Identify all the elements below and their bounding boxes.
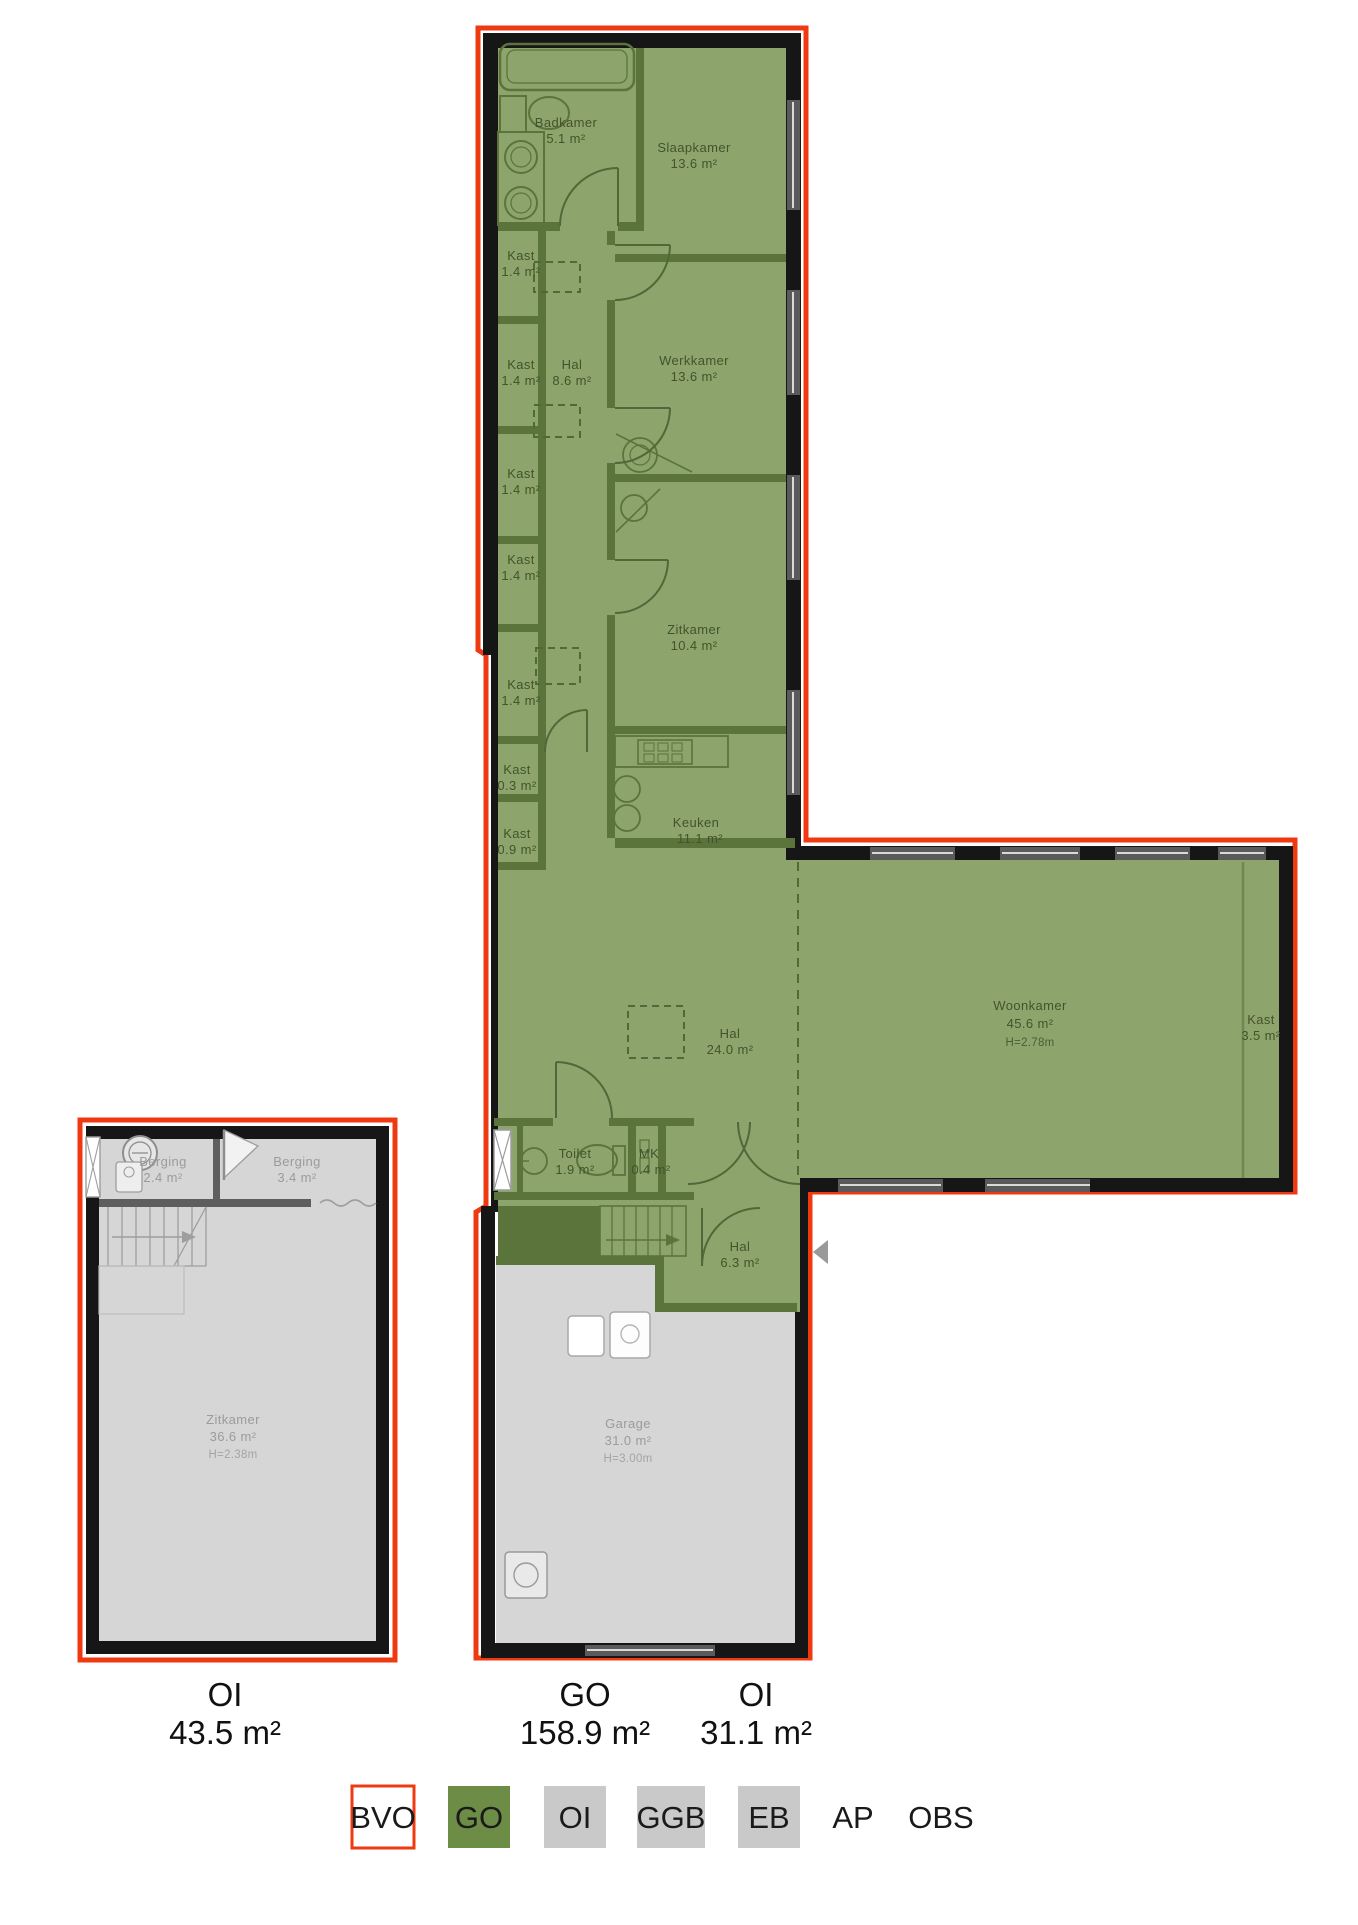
room-label-woonkamer-name: Woonkamer xyxy=(993,998,1067,1013)
room-label-mk-name: MK xyxy=(639,1146,659,1161)
legend-label-eb: EB xyxy=(748,1800,789,1835)
room-label-kast09-name: Kast xyxy=(503,826,531,841)
total-right-area: 31.1 m² xyxy=(700,1714,812,1751)
left-window xyxy=(86,1137,100,1197)
room-label-hal-entree-area: 6.3 m² xyxy=(720,1255,760,1270)
room-label-hal-entree-name: Hal xyxy=(730,1239,751,1254)
total-left-area: 43.5 m² xyxy=(169,1714,281,1751)
room-label-zitkamer10-area: 10.4 m² xyxy=(671,638,718,653)
legend-label-oi: OI xyxy=(559,1800,592,1835)
room-label-slaapkamer-name: Slaapkamer xyxy=(657,140,731,155)
total-left-code: OI xyxy=(208,1676,243,1713)
room-label-kast3-area: 1.4 m² xyxy=(501,482,541,497)
room-label-zitkamer10-name: Zitkamer xyxy=(667,622,721,637)
room-label-kast35-area: 3.5 m² xyxy=(1241,1028,1281,1043)
section-totals: OI 43.5 m² GO 158.9 m² OI 31.1 m² xyxy=(169,1676,812,1751)
legend-label-ggb: GGB xyxy=(637,1800,706,1835)
room-label-kast5-area: 1.4 m² xyxy=(501,693,541,708)
legend-label-obs: OBS xyxy=(908,1800,973,1835)
room-label-keuken-area: 11.1 m² xyxy=(677,831,723,846)
room-label-hal-midden-area: 24.0 m² xyxy=(707,1042,754,1057)
room-label-berging2-area: 3.4 m² xyxy=(277,1170,317,1185)
room-label-berging1-name: Berging xyxy=(139,1154,187,1169)
room-label-keuken-name: Keuken xyxy=(673,815,720,830)
appliance-2 xyxy=(610,1312,650,1358)
room-label-badkamer-area: 5.1 m² xyxy=(546,131,586,146)
total-right-code: OI xyxy=(739,1676,774,1713)
total-go-area: 158.9 m² xyxy=(520,1714,650,1751)
room-label-badkamer-name: Badkamer xyxy=(535,115,598,130)
room-label-berging1-area: 2.4 m² xyxy=(143,1170,183,1185)
room-label-hal-midden-name: Hal xyxy=(720,1026,741,1041)
room-label-mk-area: 0.4 m² xyxy=(631,1162,671,1177)
entrance-marker xyxy=(813,1240,828,1264)
room-label-slaapkamer-area: 13.6 m² xyxy=(671,156,718,171)
room-label-kast09-area: 0.9 m² xyxy=(497,842,537,857)
room-label-zitkamer36-area: 36.6 m² xyxy=(210,1429,257,1444)
floorplan-page: Badkamer 5.1 m² Slaapkamer 13.6 m² Kast … xyxy=(0,0,1358,1920)
room-label-woonkamer-area: 45.6 m² xyxy=(1007,1016,1054,1031)
room-label-zitkamer36-name: Zitkamer xyxy=(206,1412,260,1427)
room-label-kast4-area: 1.4 m² xyxy=(501,568,541,583)
room-label-kast03-area: 0.3 m² xyxy=(497,778,537,793)
room-label-berging2-name: Berging xyxy=(273,1154,321,1169)
room-label-hal-boven-name: Hal xyxy=(562,357,583,372)
room-label-kast2-area: 1.4 m² xyxy=(501,373,541,388)
room-label-werkkamer-area: 13.6 m² xyxy=(671,369,718,384)
room-label-kast35-name: Kast xyxy=(1247,1012,1275,1027)
room-label-garage-height: H=3.00m xyxy=(603,1453,652,1465)
room-label-kast1-area: 1.4 m² xyxy=(501,264,541,279)
legend-label-ap: AP xyxy=(832,1800,873,1835)
main-floorplan: Badkamer 5.1 m² Slaapkamer 13.6 m² Kast … xyxy=(476,28,1295,1658)
floorplan-canvas: Badkamer 5.1 m² Slaapkamer 13.6 m² Kast … xyxy=(0,0,1358,1920)
garage-unit xyxy=(505,1552,547,1598)
room-label-hal-boven-area: 8.6 m² xyxy=(552,373,592,388)
room-label-kast03-name: Kast xyxy=(503,762,531,777)
room-label-zitkamer36-height: H=2.38m xyxy=(208,1449,257,1461)
room-label-toilet-area: 1.9 m² xyxy=(555,1162,595,1177)
room-label-garage-name: Garage xyxy=(605,1416,651,1431)
room-label-kast5-name: Kast xyxy=(507,677,535,692)
legend-label-bvo: BVO xyxy=(350,1800,415,1835)
left-floorplan: Berging 2.4 m² Berging 3.4 m² Zitkamer 3… xyxy=(80,1120,395,1660)
room-label-woonkamer-height: H=2.78m xyxy=(1005,1037,1054,1049)
room-label-kast3-name: Kast xyxy=(507,466,535,481)
room-label-kast1-name: Kast xyxy=(507,248,535,263)
room-label-kast4-name: Kast xyxy=(507,552,535,567)
total-go-code: GO xyxy=(559,1676,610,1713)
room-label-garage-area: 31.0 m² xyxy=(605,1433,652,1448)
legend-label-go: GO xyxy=(455,1800,503,1835)
room-label-toilet-name: Toilet xyxy=(559,1146,592,1161)
appliance-1 xyxy=(568,1316,604,1356)
legend: BVO GO OI GGB EB AP OBS xyxy=(350,1786,973,1848)
room-label-werkkamer-name: Werkkamer xyxy=(659,353,729,368)
room-label-kast2-name: Kast xyxy=(507,357,535,372)
oi-area-left xyxy=(99,1139,376,1641)
